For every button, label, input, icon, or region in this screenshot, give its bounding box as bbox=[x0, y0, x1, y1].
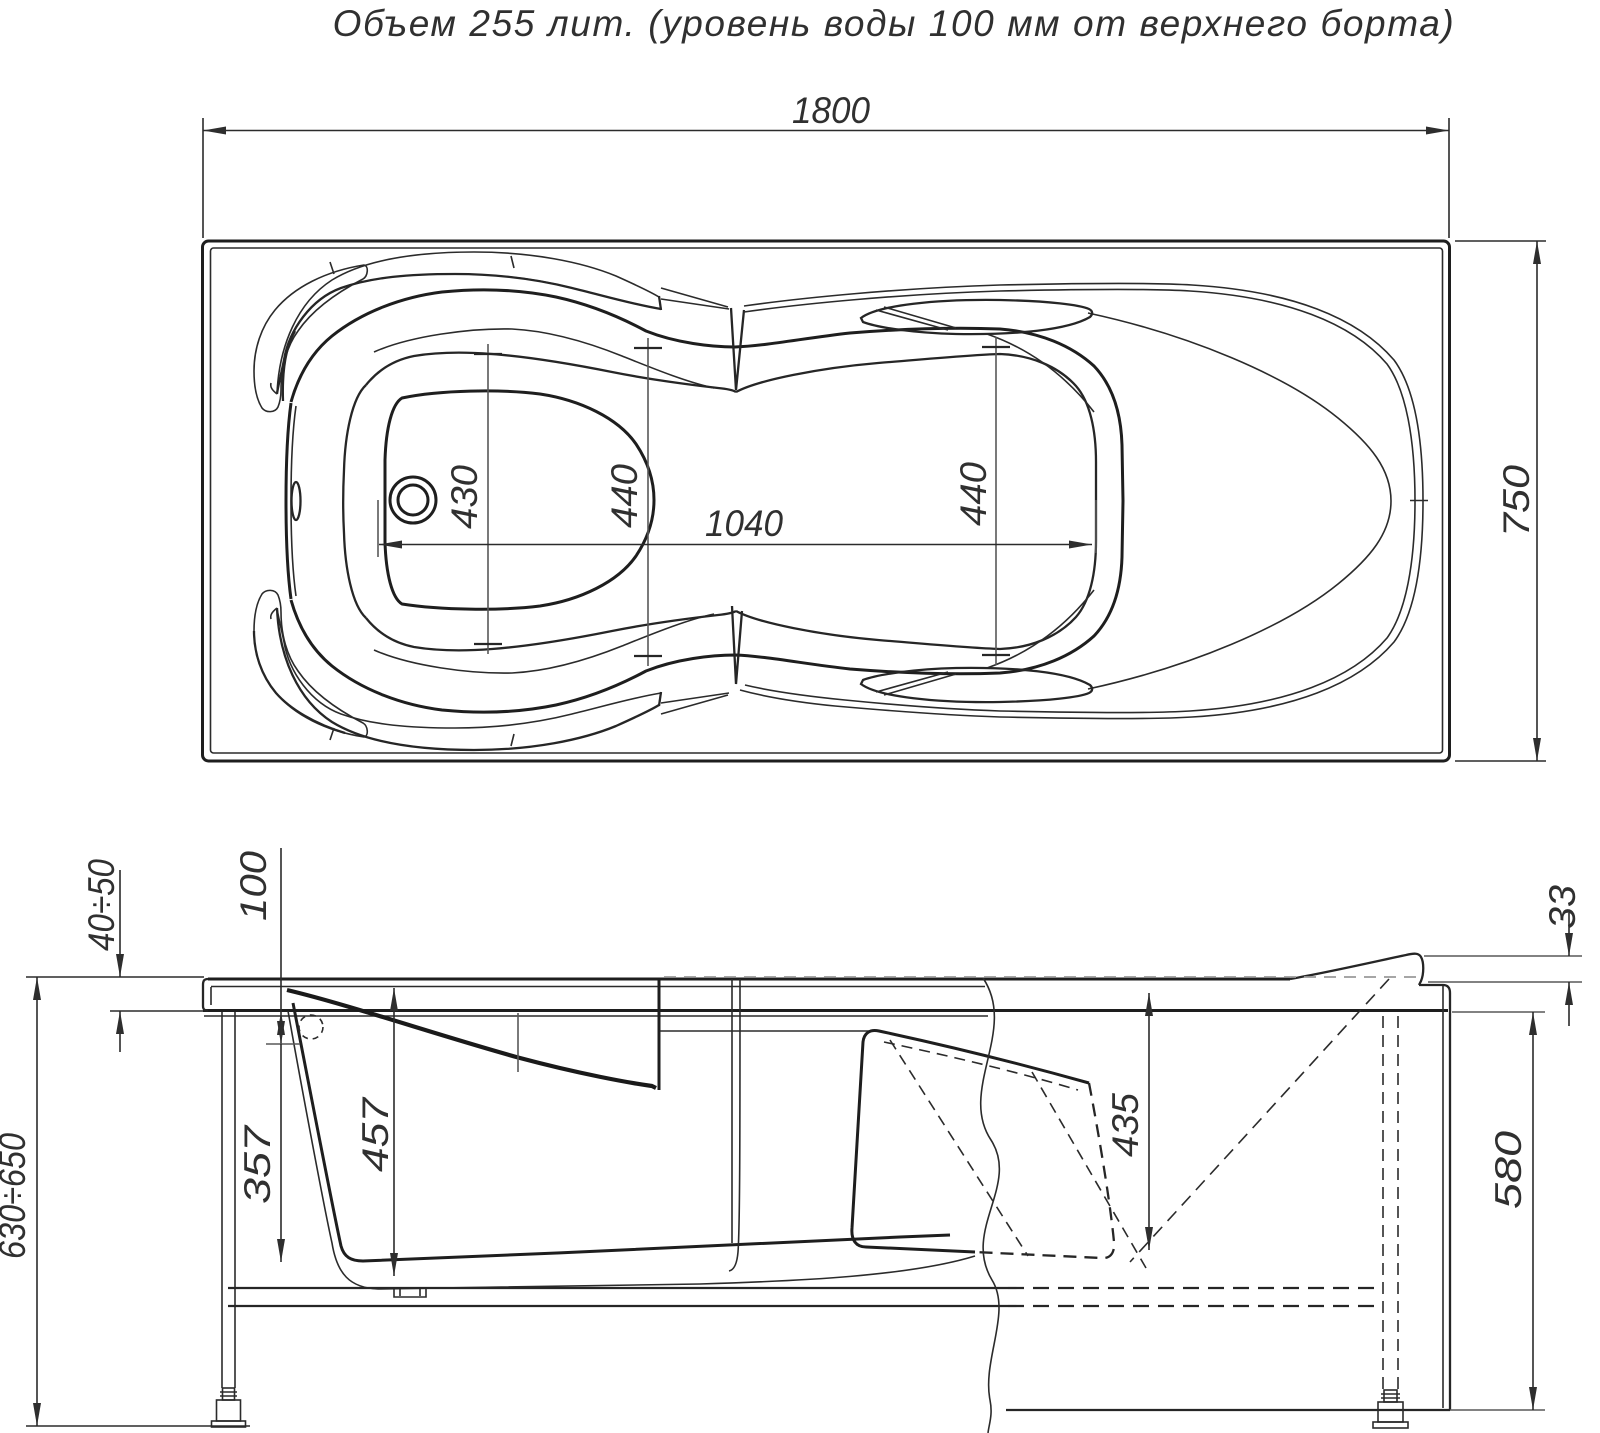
svg-text:40÷50: 40÷50 bbox=[81, 859, 122, 951]
svg-text:457: 457 bbox=[355, 1096, 396, 1172]
svg-text:435: 435 bbox=[1105, 1093, 1146, 1157]
svg-text:1800: 1800 bbox=[792, 90, 870, 131]
svg-text:Объем 255 лит. (уровень воды 1: Объем 255 лит. (уровень воды 100 мм от в… bbox=[333, 3, 1456, 44]
svg-text:440: 440 bbox=[953, 462, 994, 526]
svg-text:1040: 1040 bbox=[705, 503, 783, 544]
svg-text:100: 100 bbox=[233, 851, 274, 921]
svg-text:33: 33 bbox=[1542, 885, 1583, 929]
svg-text:580: 580 bbox=[1488, 1130, 1529, 1209]
svg-text:750: 750 bbox=[1496, 465, 1537, 537]
svg-text:430: 430 bbox=[444, 465, 485, 529]
svg-text:440: 440 bbox=[604, 464, 645, 528]
svg-text:630÷650: 630÷650 bbox=[0, 1133, 33, 1259]
svg-text:357: 357 bbox=[237, 1124, 278, 1204]
